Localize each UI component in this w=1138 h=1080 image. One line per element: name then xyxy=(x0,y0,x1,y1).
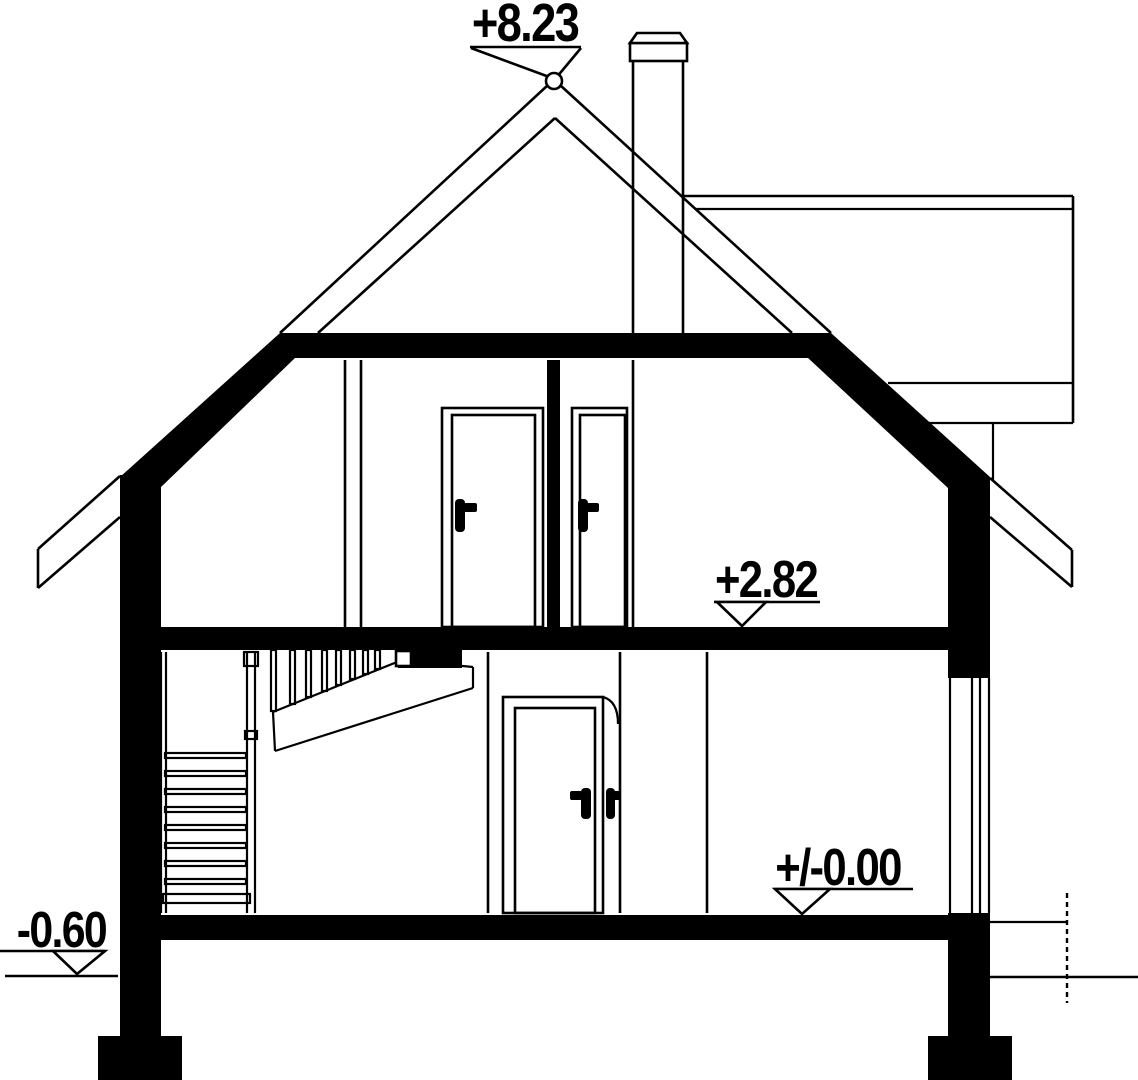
chimney xyxy=(630,33,687,334)
attic-door-right xyxy=(572,408,627,627)
left-exterior-wall xyxy=(120,475,161,1080)
chimney-cap xyxy=(630,43,687,61)
foundation-right xyxy=(928,1036,1012,1080)
door-handle-icon xyxy=(581,788,591,819)
cross-section-drawing: +8.23 +2.82 +/-0.00 -0.60 xyxy=(0,0,1138,1080)
ground-floor-level-label: +/-0.00 xyxy=(775,840,901,897)
attic-door-left xyxy=(442,408,543,627)
first-floor-level-marker: +2.82 xyxy=(714,552,820,626)
ground-floor-slab xyxy=(160,915,948,940)
ridge-apex-node xyxy=(546,73,562,89)
chimney-cap-top xyxy=(630,33,687,43)
first-floor-level-label: +2.82 xyxy=(715,552,817,609)
left-eave xyxy=(38,476,120,588)
stair-treads xyxy=(163,753,250,903)
staircase xyxy=(161,650,473,913)
stair-base-step xyxy=(163,894,250,903)
exterior-grade-level-label: -0.60 xyxy=(17,900,107,957)
stair-newel-post xyxy=(244,652,258,913)
right-exterior-wall-upper xyxy=(948,477,990,678)
section-canvas: +8.23 +2.82 +/-0.00 -0.60 xyxy=(0,0,1138,1080)
first-floor-slab xyxy=(160,627,948,650)
attic-partition-wall-cut xyxy=(547,360,560,628)
door-handle-icon xyxy=(464,503,477,512)
ground-floor-door xyxy=(503,697,621,913)
exterior-grade-level-marker: -0.60 xyxy=(0,900,107,974)
stair-balusters xyxy=(271,650,380,711)
right-eave xyxy=(990,478,1072,587)
door-handle-icon xyxy=(455,499,465,532)
cut-structure xyxy=(98,333,1012,1080)
door-handle-icon xyxy=(587,503,599,512)
ridge-level-label: +8.23 xyxy=(472,0,578,53)
door-handle-icon xyxy=(578,499,588,532)
ground-floor-level-marker: +/-0.00 xyxy=(774,840,913,914)
door-handle-icon xyxy=(613,791,621,800)
railing-post xyxy=(396,651,411,666)
right-wall-window xyxy=(950,678,989,913)
ridge-level-marker: +8.23 xyxy=(470,0,581,89)
foundation-left xyxy=(98,1036,182,1080)
door-handle-icon xyxy=(570,791,582,800)
